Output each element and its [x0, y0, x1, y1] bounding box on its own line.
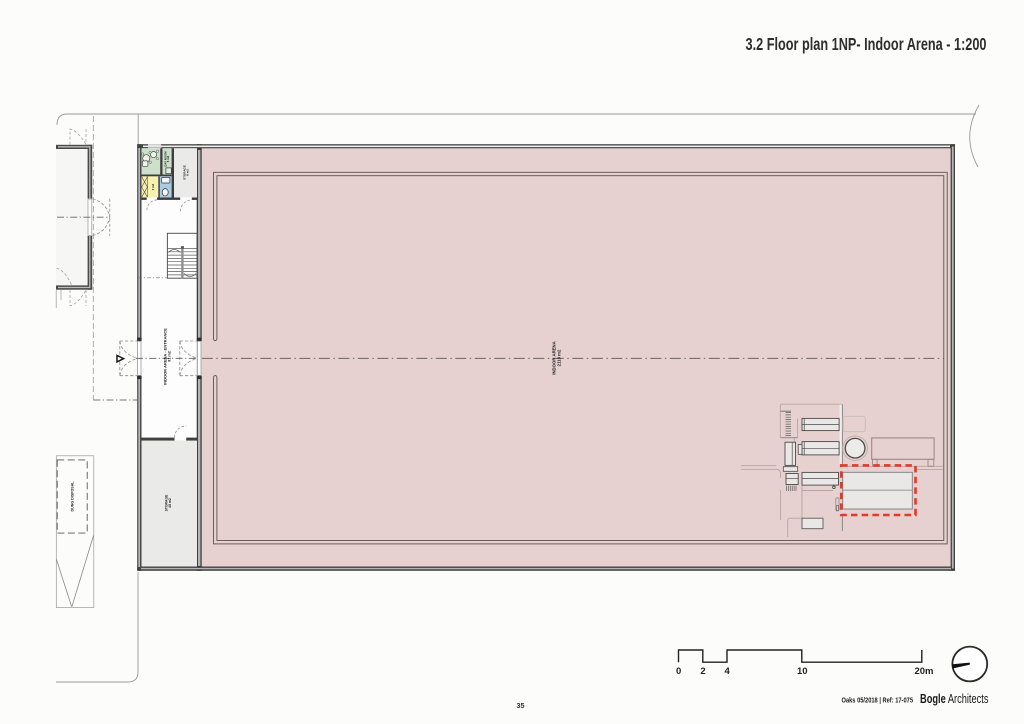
svg-text:DUNG DISPOSAL: DUNG DISPOSAL — [71, 481, 75, 512]
svg-text:10: 10 — [797, 666, 808, 677]
svg-text:Oaks 05/2018 | Ref: 17-075: Oaks 05/2018 | Ref: 17-075 — [842, 696, 914, 705]
svg-text:20m: 20m — [914, 666, 933, 677]
svg-text:8 m2: 8 m2 — [166, 155, 170, 162]
svg-text:35: 35 — [517, 701, 525, 710]
svg-text:Bogle Architects: Bogle Architects — [920, 691, 989, 706]
svg-text:2119 m2: 2119 m2 — [556, 349, 561, 366]
svg-text:3.2 Floor plan 1NP- Indoor Are: 3.2 Floor plan 1NP- Indoor Arena - 1:200 — [746, 34, 987, 54]
svg-text:0: 0 — [676, 666, 681, 677]
svg-text:4: 4 — [725, 666, 731, 677]
svg-text:8 m2: 8 m2 — [186, 169, 190, 176]
svg-text:2 m2: 2 m2 — [151, 183, 155, 190]
svg-text:48 m2: 48 m2 — [168, 498, 172, 508]
svg-text:2: 2 — [700, 666, 705, 677]
svg-text:91 m2: 91 m2 — [168, 351, 172, 362]
